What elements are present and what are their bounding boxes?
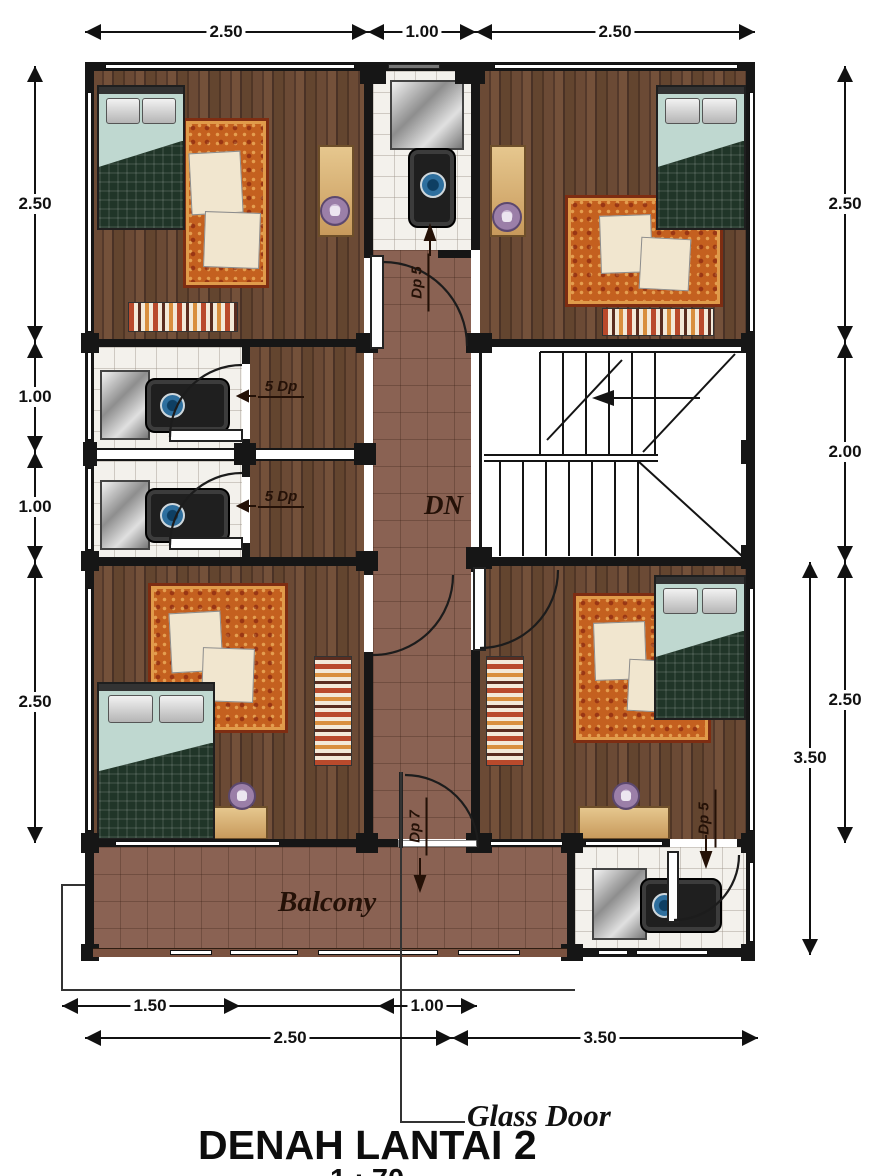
dim-label: 2.50 <box>825 194 864 214</box>
dim-label: 1.00 <box>15 387 54 407</box>
plan-title: DENAH LANTAI 2 <box>198 1122 537 1169</box>
door-tag-mid-bathroom-upper: 5 Dp <box>258 378 304 398</box>
dimension-lines <box>35 32 845 1038</box>
dim-label: 2.50 <box>825 690 864 710</box>
door-swings <box>170 262 739 920</box>
dim-label: 3.50 <box>580 1028 619 1048</box>
dim-label: 2.50 <box>206 22 245 42</box>
door-tag-top-bathroom: Dp 5 <box>409 254 430 312</box>
stair-direction-arrow <box>592 390 614 406</box>
balcony-label: Balcony <box>278 886 376 919</box>
stairs <box>484 352 746 556</box>
dim-label: 3.50 <box>790 748 829 768</box>
annotation-arrows <box>238 226 711 890</box>
dim-label: 1.00 <box>407 996 446 1016</box>
door-arc-bedroom-bottom-right <box>480 570 558 648</box>
door-tag-balcony-door: Dp 7 <box>407 798 428 856</box>
dim-label: 2.50 <box>270 1028 309 1048</box>
plan-scale: 1 : 70 <box>330 1164 404 1176</box>
dim-label: 1.50 <box>130 996 169 1016</box>
door-arc-mid-bathroom-lower <box>170 473 242 545</box>
stairs-down-label: DN <box>424 490 463 521</box>
dim-label: 2.50 <box>15 692 54 712</box>
dim-label: 2.50 <box>595 22 634 42</box>
dim-label: 2.00 <box>825 442 864 462</box>
dim-label: 2.50 <box>15 194 54 214</box>
floor-plan: 2.50 1.00 2.50 2.50 1.00 1.00 2.50 2.50 … <box>0 0 874 1176</box>
door-tag-mid-bathroom-lower: 5 Dp <box>258 488 304 508</box>
dim-label: 1.00 <box>15 497 54 517</box>
door-arc-mid-bathroom-upper <box>170 365 242 437</box>
door-tag-bottom-bathroom: Dp 5 <box>696 790 717 848</box>
dim-label: 1.00 <box>402 22 441 42</box>
door-arc-bedroom-bottom-left <box>373 575 453 655</box>
